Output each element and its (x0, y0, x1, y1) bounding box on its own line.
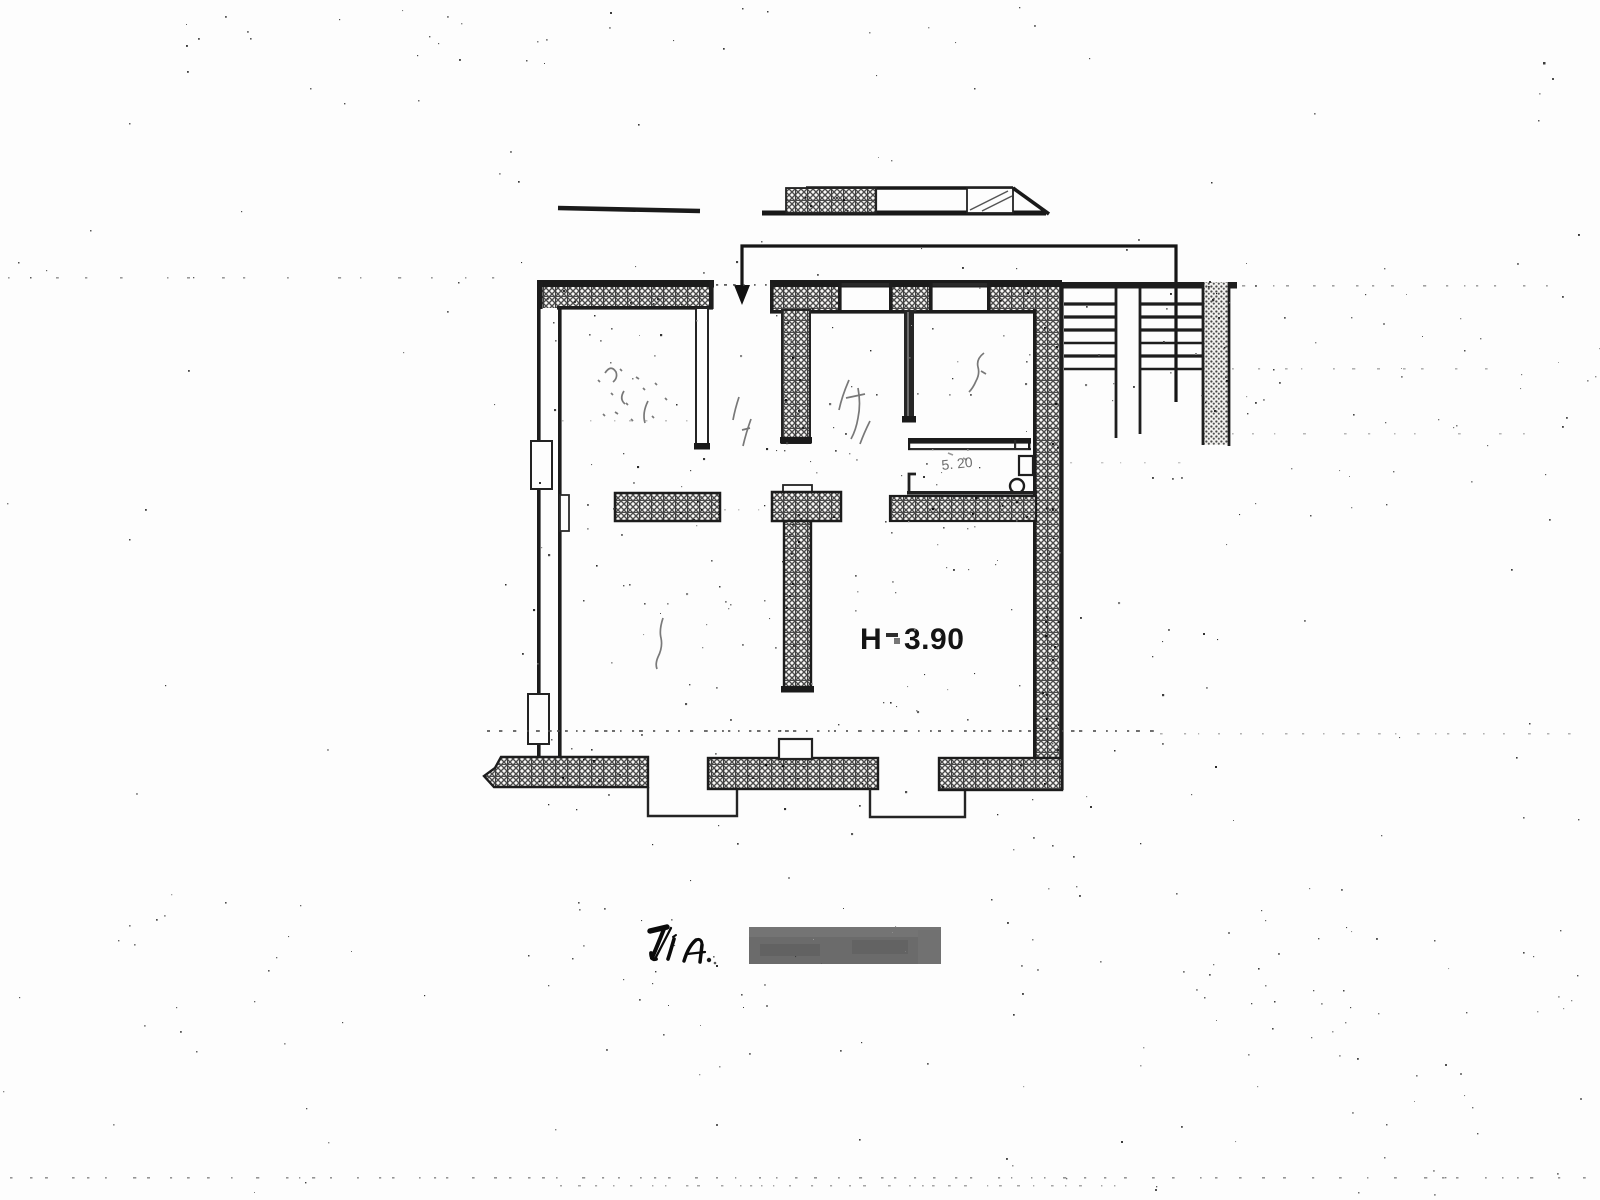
svg-text:5. 20: 5. 20 (941, 454, 974, 473)
svg-text:H: H (860, 623, 882, 656)
svg-text:3.90: 3.90 (904, 623, 964, 656)
